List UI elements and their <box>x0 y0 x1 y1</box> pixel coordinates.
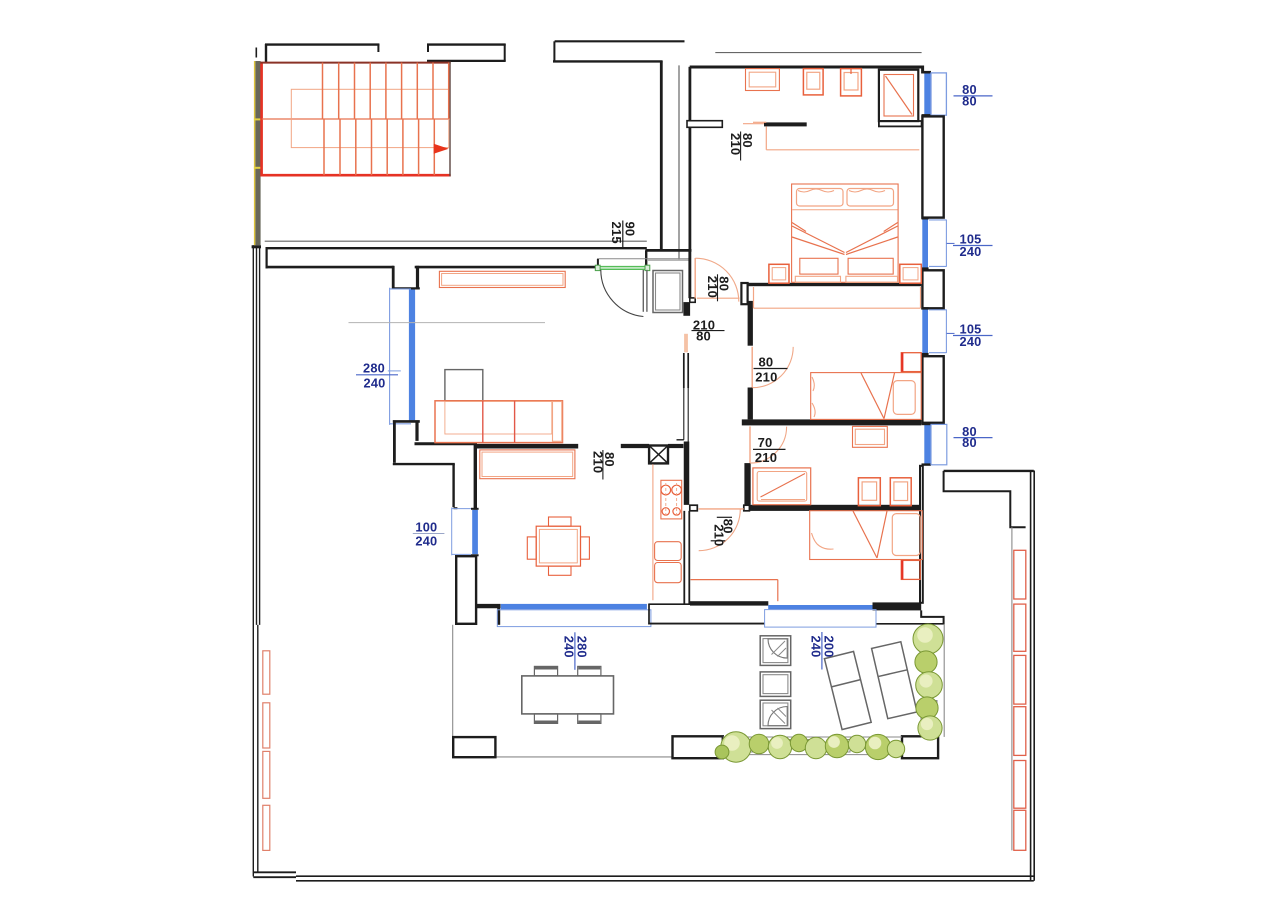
svg-text:70: 70 <box>758 435 773 450</box>
svg-text:215: 215 <box>609 222 624 244</box>
svg-text:240: 240 <box>960 334 982 349</box>
svg-text:80: 80 <box>696 328 711 343</box>
svg-text:240: 240 <box>809 636 824 658</box>
svg-text:240: 240 <box>562 636 577 658</box>
svg-text:240: 240 <box>960 244 982 259</box>
svg-text:210: 210 <box>711 524 726 546</box>
svg-text:80: 80 <box>962 435 977 450</box>
svg-text:210: 210 <box>755 369 777 384</box>
svg-text:100: 100 <box>415 520 437 535</box>
svg-text:80: 80 <box>758 354 773 369</box>
svg-text:210: 210 <box>705 276 720 298</box>
svg-text:210: 210 <box>755 450 777 465</box>
svg-text:240: 240 <box>364 376 386 391</box>
svg-text:210: 210 <box>591 451 606 473</box>
svg-text:240: 240 <box>415 534 437 549</box>
svg-text:80: 80 <box>962 93 977 108</box>
svg-text:210: 210 <box>728 133 743 155</box>
svg-text:280: 280 <box>363 361 385 376</box>
